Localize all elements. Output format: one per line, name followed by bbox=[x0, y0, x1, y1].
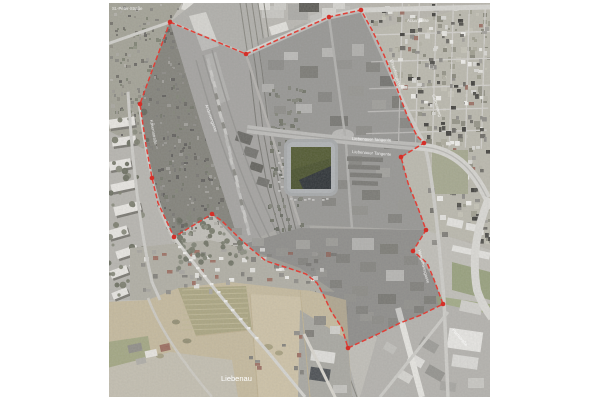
svg-text:Ackergasse: Ackergasse bbox=[407, 18, 430, 23]
svg-text:Liebenau: Liebenau bbox=[221, 374, 252, 383]
svg-text:St.-Peter-Straße: St.-Peter-Straße bbox=[112, 6, 143, 11]
